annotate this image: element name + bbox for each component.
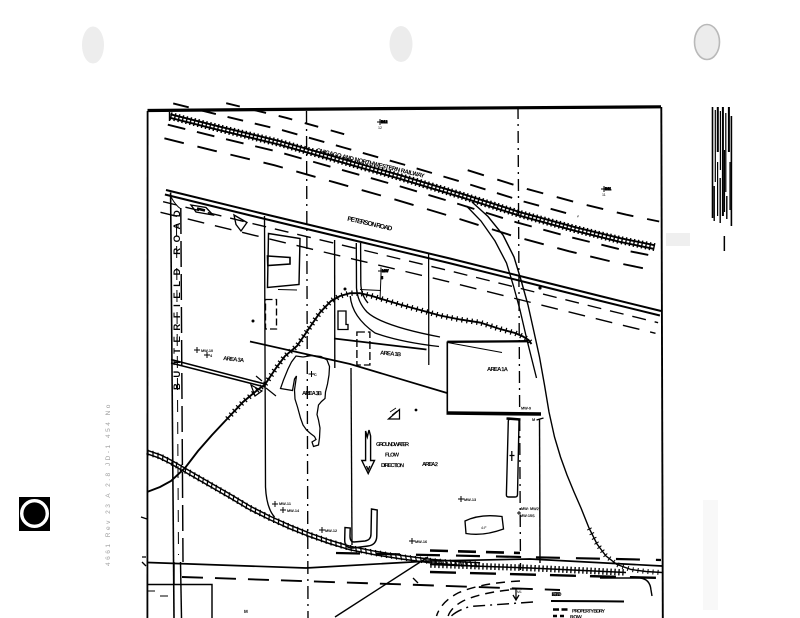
svg-text:5: 5: [381, 276, 383, 280]
svg-text:4-F: 4-F: [481, 526, 487, 530]
svg-text:DIRECTION: DIRECTION: [381, 463, 404, 469]
svg-text:MW-13: MW-13: [464, 498, 476, 502]
svg-text:B12: B12: [381, 120, 387, 124]
svg-text:AREA 3B: AREA 3B: [302, 391, 322, 397]
svg-text:LEGEND: LEGEND: [551, 592, 561, 598]
svg-text:MW-16: MW-16: [415, 540, 427, 544]
svg-text:MW-9: MW-9: [521, 407, 531, 411]
svg-text:AREA 2: AREA 2: [422, 462, 438, 468]
svg-text:MW: MW: [382, 269, 389, 273]
svg-text:MW-15S: MW-15S: [520, 514, 535, 518]
svg-text:MW-14: MW-14: [287, 509, 300, 513]
svg-text:FLOW: FLOW: [385, 453, 400, 459]
svg-text:12: 12: [378, 126, 382, 130]
svg-text:4661 Rev 23 A 2.8 JD-1 454 No: 4661 Rev 23 A 2.8 JD-1 454 No: [105, 402, 112, 566]
svg-text:B11: B11: [605, 187, 611, 191]
svg-text:AREA 1A: AREA 1A: [487, 367, 509, 373]
svg-text:MW-12: MW-12: [325, 529, 337, 533]
svg-text:MW-11: MW-11: [279, 502, 291, 506]
svg-text:M: M: [532, 418, 535, 422]
svg-text:R.O.W.: R.O.W.: [570, 615, 583, 618]
svg-text:MW- MW2: MW- MW2: [521, 507, 539, 511]
svg-text:GROUNDWATER: GROUNDWATER: [376, 442, 409, 448]
svg-text:M1: M1: [517, 590, 522, 594]
svg-text:M: M: [244, 609, 248, 614]
svg-text:C: C: [314, 373, 317, 377]
svg-text:11: 11: [602, 193, 606, 197]
